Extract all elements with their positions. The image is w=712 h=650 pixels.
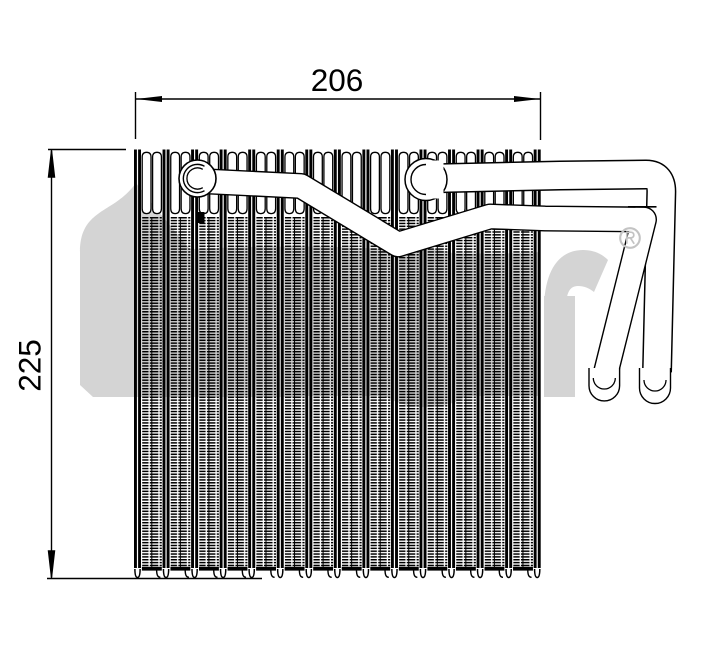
svg-text:225: 225: [12, 339, 48, 392]
svg-text:206: 206: [311, 62, 364, 98]
